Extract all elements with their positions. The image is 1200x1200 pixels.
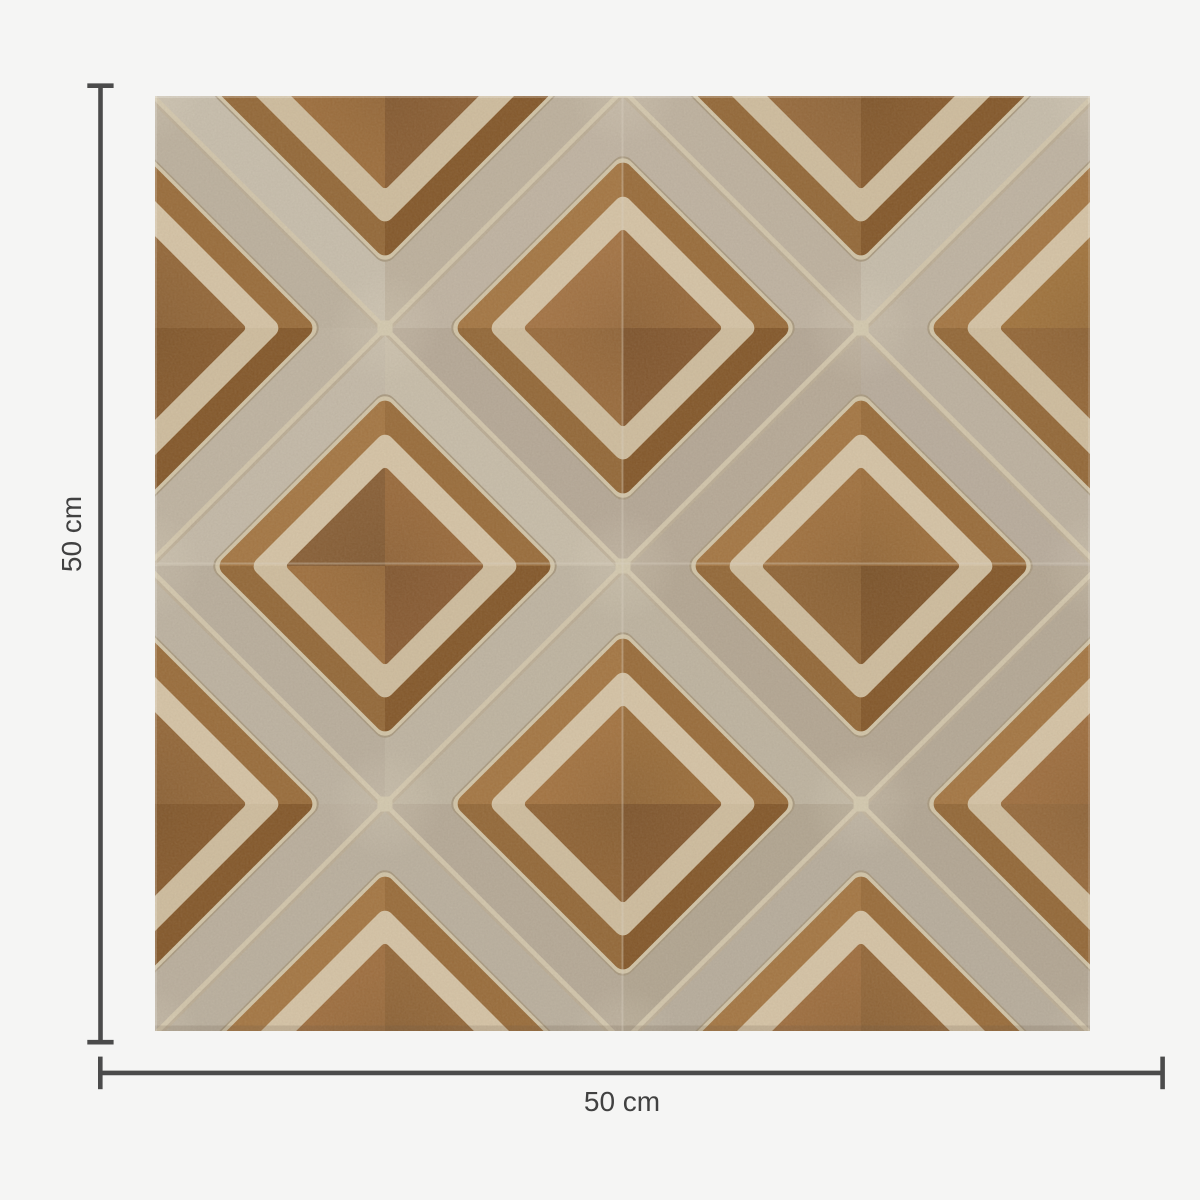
svg-text:50 cm: 50 cm [56,496,87,572]
svg-text:50 cm: 50 cm [584,1086,660,1117]
